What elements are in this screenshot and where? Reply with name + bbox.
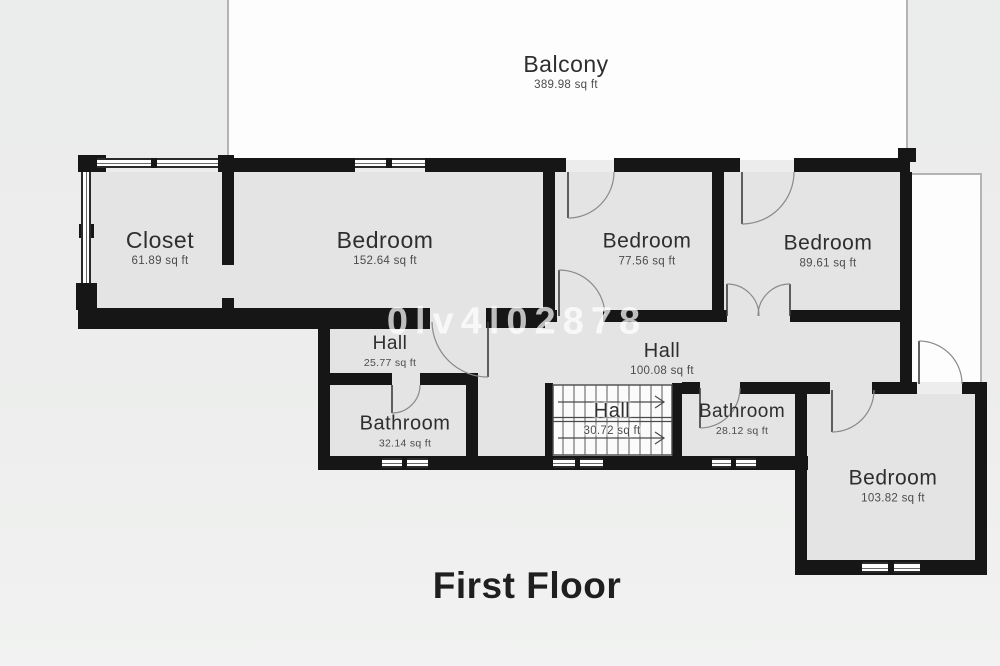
- room-area: 25.77 sq ft: [364, 357, 416, 369]
- balcony-label: Balcony 389.98 sq ft: [523, 51, 608, 93]
- closet-label: Closet 61.89 sq ft: [126, 227, 194, 269]
- bedroom-main-label: Bedroom 152.64 sq ft: [337, 227, 434, 269]
- room-area: 32.14 sq ft: [360, 437, 451, 449]
- hall-main-label: Hall 100.08 sq ft: [630, 340, 694, 378]
- bathroom-right-label: Bathroom 28.12 sq ft: [699, 401, 785, 437]
- room-name: Hall: [583, 400, 640, 423]
- bedroom-bottom-label: Bedroom 103.82 sq ft: [849, 466, 938, 505]
- bedroom-right-label: Bedroom 89.61 sq ft: [784, 231, 873, 270]
- door-arc-bathroom-left: [392, 385, 420, 413]
- door-arc-terrace: [919, 341, 962, 384]
- room-area: 28.12 sq ft: [699, 425, 785, 437]
- room-area: 389.98 sq ft: [523, 80, 608, 93]
- door-arc-bedroom-bottom: [832, 390, 874, 432]
- watermark: 0lv4l02878: [387, 301, 647, 344]
- door-arc-bedroom-right-balcony: [742, 172, 794, 224]
- floor-title: First Floor: [433, 565, 621, 607]
- room-area: 77.56 sq ft: [603, 255, 692, 268]
- room-area: 30.72 sq ft: [583, 425, 640, 438]
- room-area: 152.64 sq ft: [337, 256, 434, 269]
- door-arc-bedroom-right-hall-left: [727, 284, 759, 316]
- bathroom-left-label: Bathroom 32.14 sq ft: [360, 412, 451, 449]
- room-name: Bedroom: [603, 229, 692, 253]
- room-area: 89.61 sq ft: [784, 257, 873, 270]
- room-area: 61.89 sq ft: [126, 256, 194, 269]
- door-arc-bedroom-right-hall-right: [758, 284, 790, 316]
- room-name: Bedroom: [849, 466, 938, 490]
- room-name: Balcony: [523, 51, 608, 77]
- room-name: Bedroom: [337, 227, 434, 253]
- room-name: Bathroom: [699, 401, 785, 423]
- room-name: Closet: [126, 227, 194, 253]
- room-area: 100.08 sq ft: [630, 365, 694, 378]
- room-name: Bedroom: [784, 231, 873, 255]
- door-arc-bedroom-mid-balcony: [568, 172, 614, 218]
- room-area: 103.82 sq ft: [849, 492, 938, 505]
- room-name: Bathroom: [360, 412, 451, 435]
- floor-plan: Balcony 389.98 sq ft Closet 61.89 sq ft …: [0, 0, 1000, 666]
- bedroom-mid-label: Bedroom 77.56 sq ft: [603, 229, 692, 268]
- hall-stairs-label: Hall 30.72 sq ft: [583, 400, 640, 438]
